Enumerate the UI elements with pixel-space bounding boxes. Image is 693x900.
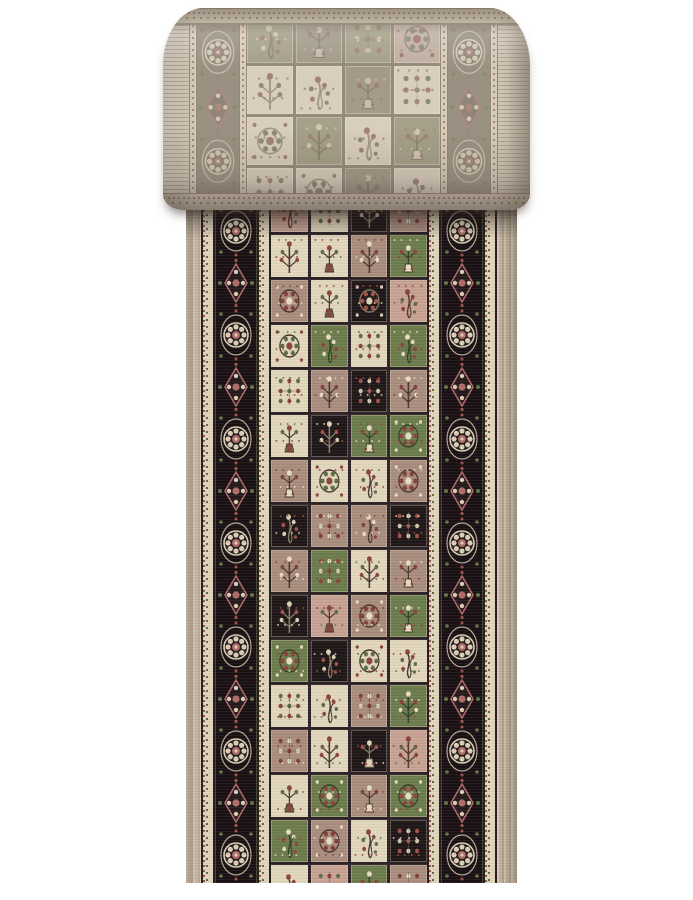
guard-stripe-inner-right <box>427 205 441 883</box>
field-panel <box>351 370 388 412</box>
panel-field <box>271 205 427 883</box>
field-panel <box>271 865 308 883</box>
roll-panel <box>247 117 293 165</box>
main-border-left <box>215 205 257 883</box>
field-panel <box>311 550 348 592</box>
guard-stripe-outer-right <box>483 205 497 883</box>
guard-stripe-outer-left <box>201 205 215 883</box>
roll-end-band-bottom <box>163 193 530 210</box>
field-panel <box>390 550 427 592</box>
field-panel <box>351 775 388 817</box>
border-medallion <box>442 829 482 881</box>
field-panel <box>271 505 308 547</box>
field-panel <box>351 550 388 592</box>
field-panel <box>311 685 348 727</box>
border-medallion <box>216 725 256 777</box>
field-panel <box>311 865 348 883</box>
field-panel <box>271 730 308 772</box>
field-panel <box>390 370 427 412</box>
border-medallion <box>216 361 256 413</box>
border-medallion <box>197 134 239 189</box>
border-medallion <box>442 361 482 413</box>
roll-panel <box>247 25 293 63</box>
roll-panel <box>345 25 391 63</box>
field-panel <box>311 505 348 547</box>
roll-guard-left <box>189 25 197 193</box>
field-panel <box>271 280 308 322</box>
border-medallion <box>442 569 482 621</box>
border-medallion <box>442 673 482 725</box>
field-panel <box>390 775 427 817</box>
field-panel <box>390 235 427 277</box>
field-panel <box>311 235 348 277</box>
border-medallion <box>216 465 256 517</box>
field-panel <box>271 640 308 682</box>
rolled-rug-top <box>163 8 530 210</box>
border-medallion <box>216 569 256 621</box>
roll-panel <box>394 117 440 165</box>
field-panel <box>271 370 308 412</box>
border-medallion <box>216 777 256 829</box>
field-panel <box>390 685 427 727</box>
field-panel <box>390 325 427 367</box>
roll-guard-right <box>490 25 498 193</box>
field-panel <box>390 505 427 547</box>
roll-panel <box>394 168 440 193</box>
border-medallion <box>448 189 490 193</box>
field-panel <box>271 775 308 817</box>
field-panel <box>351 820 388 862</box>
field-panel <box>351 505 388 547</box>
border-medallion <box>448 134 490 189</box>
field-panel <box>390 730 427 772</box>
field-panel <box>271 820 308 862</box>
field-panel <box>390 415 427 457</box>
border-medallion <box>442 881 482 883</box>
field-panel <box>390 640 427 682</box>
field-panel <box>271 550 308 592</box>
roll-panel <box>296 117 342 165</box>
main-border-right <box>441 205 483 883</box>
field-panel <box>271 235 308 277</box>
roll-guard-inner-left <box>239 25 247 193</box>
border-medallion <box>442 413 482 465</box>
border-medallion <box>216 205 256 257</box>
flat-runner <box>186 205 517 883</box>
field-panel <box>351 280 388 322</box>
field-panel <box>311 595 348 637</box>
roll-panel <box>394 25 440 63</box>
roll-border-left <box>197 25 239 193</box>
roll-guard-inner-right <box>440 25 448 193</box>
field-panel <box>271 325 308 367</box>
field-panel <box>311 325 348 367</box>
border-medallion <box>216 309 256 361</box>
border-medallion <box>216 829 256 881</box>
field-panel <box>351 865 388 883</box>
field-panel <box>271 685 308 727</box>
field-panel <box>311 415 348 457</box>
border-medallion <box>442 257 482 309</box>
selvedge-right <box>497 205 517 883</box>
border-medallion <box>197 25 239 80</box>
field-panel <box>351 460 388 502</box>
field-panel <box>351 640 388 682</box>
border-medallion <box>442 725 482 777</box>
roll-edge-ribs-left <box>163 25 189 193</box>
border-medallion <box>442 517 482 569</box>
roll-panel <box>247 168 293 193</box>
field-panel <box>351 415 388 457</box>
field-panel <box>271 460 308 502</box>
border-medallion <box>442 465 482 517</box>
roll-end-band-top <box>163 8 530 25</box>
roll-border-right <box>448 25 490 193</box>
roll-edge-ribs-right <box>498 25 530 193</box>
border-medallion <box>442 309 482 361</box>
border-medallion <box>448 25 490 80</box>
field-panel <box>390 820 427 862</box>
field-panel <box>351 685 388 727</box>
border-medallion <box>442 205 482 257</box>
border-medallion <box>216 413 256 465</box>
roll-panel-field <box>247 25 440 193</box>
field-panel <box>271 595 308 637</box>
guard-stripe-inner-left <box>257 205 271 883</box>
field-panel <box>271 415 308 457</box>
field-panel <box>390 460 427 502</box>
roll-panel <box>345 117 391 165</box>
roll-panel-grid <box>247 25 440 193</box>
field-panel <box>390 865 427 883</box>
border-medallion <box>216 673 256 725</box>
roll-panel <box>247 66 293 114</box>
border-medallion <box>197 80 239 135</box>
roll-panel <box>296 25 342 63</box>
border-medallion <box>216 621 256 673</box>
roll-panel <box>394 66 440 114</box>
field-panel <box>311 370 348 412</box>
border-medallion <box>216 257 256 309</box>
field-panel <box>390 595 427 637</box>
product-photo <box>0 0 693 900</box>
border-medallion <box>197 189 239 193</box>
border-medallion <box>442 621 482 673</box>
border-medallion <box>448 80 490 135</box>
field-panel <box>311 775 348 817</box>
field-panel <box>390 280 427 322</box>
field-panel <box>311 280 348 322</box>
field-panel <box>311 460 348 502</box>
selvedge-left <box>186 205 201 883</box>
field-panel <box>351 235 388 277</box>
field-panel <box>311 730 348 772</box>
roll-panel <box>296 168 342 193</box>
roll-panel <box>345 168 391 193</box>
border-medallion <box>216 881 256 883</box>
field-panel <box>351 325 388 367</box>
border-medallion <box>442 777 482 829</box>
field-panel <box>351 730 388 772</box>
roll-panel <box>345 66 391 114</box>
roll-panel <box>296 66 342 114</box>
border-medallion <box>216 517 256 569</box>
field-panel <box>351 595 388 637</box>
field-panel <box>311 640 348 682</box>
panel-field-grid <box>271 205 427 883</box>
field-panel <box>311 820 348 862</box>
roll-face <box>163 25 530 193</box>
